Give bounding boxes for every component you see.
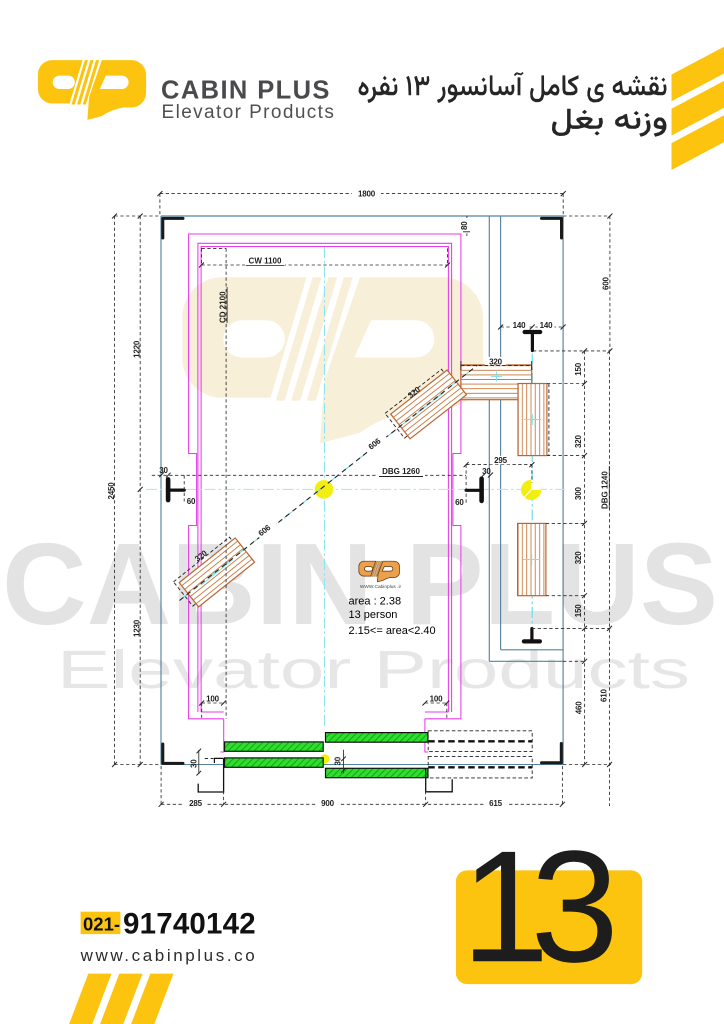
svg-text:13 person: 13 person bbox=[349, 609, 398, 621]
svg-text:60: 60 bbox=[455, 498, 464, 507]
svg-text:900: 900 bbox=[321, 799, 334, 808]
svg-text:13: 13 bbox=[461, 817, 612, 995]
svg-text:CABIN PLUS: CABIN PLUS bbox=[161, 77, 331, 105]
svg-text:150: 150 bbox=[574, 362, 583, 375]
svg-text:100: 100 bbox=[430, 694, 443, 703]
svg-text:60: 60 bbox=[187, 497, 196, 506]
svg-text:320: 320 bbox=[574, 435, 583, 448]
svg-text:285: 285 bbox=[189, 799, 202, 808]
svg-text:CD 2100: CD 2100 bbox=[218, 291, 227, 323]
svg-text:80: 80 bbox=[460, 221, 469, 230]
svg-text:150: 150 bbox=[574, 604, 583, 617]
svg-text:WWW.Cabinplus .ir: WWW.Cabinplus .ir bbox=[360, 584, 402, 590]
svg-text:30: 30 bbox=[333, 756, 342, 765]
svg-text:1220: 1220 bbox=[133, 340, 142, 358]
svg-text:610: 610 bbox=[600, 689, 609, 702]
svg-text:CW 1100: CW 1100 bbox=[249, 256, 282, 265]
svg-text:91740142: 91740142 bbox=[123, 908, 256, 941]
svg-text:www.cabinplus.co: www.cabinplus.co bbox=[80, 946, 258, 965]
svg-text:DBG 1240: DBG 1240 bbox=[600, 471, 609, 509]
svg-text:295: 295 bbox=[494, 456, 507, 465]
svg-text:600: 600 bbox=[602, 277, 611, 290]
svg-text:1230: 1230 bbox=[133, 619, 142, 637]
svg-text:area : 2.38: area : 2.38 bbox=[349, 595, 402, 607]
svg-text:300: 300 bbox=[574, 487, 583, 500]
svg-text:30: 30 bbox=[482, 467, 491, 476]
svg-text:100: 100 bbox=[206, 694, 219, 703]
svg-text:460: 460 bbox=[574, 701, 583, 714]
svg-text:2.15<= area<2.40: 2.15<= area<2.40 bbox=[349, 625, 436, 637]
svg-text:30: 30 bbox=[190, 759, 199, 768]
svg-text:1800: 1800 bbox=[358, 190, 376, 199]
svg-text:615: 615 bbox=[489, 799, 502, 808]
svg-text:140: 140 bbox=[513, 321, 526, 330]
svg-text:021-: 021- bbox=[83, 914, 120, 935]
svg-text:Elevator Products: Elevator Products bbox=[162, 102, 336, 123]
svg-text:DBG 1260: DBG 1260 bbox=[382, 467, 420, 476]
svg-text:Elevator Products: Elevator Products bbox=[57, 640, 690, 700]
svg-text:140: 140 bbox=[540, 321, 553, 330]
svg-text:320: 320 bbox=[574, 551, 583, 564]
svg-text:2450: 2450 bbox=[107, 482, 116, 500]
svg-text:30: 30 bbox=[159, 466, 168, 475]
